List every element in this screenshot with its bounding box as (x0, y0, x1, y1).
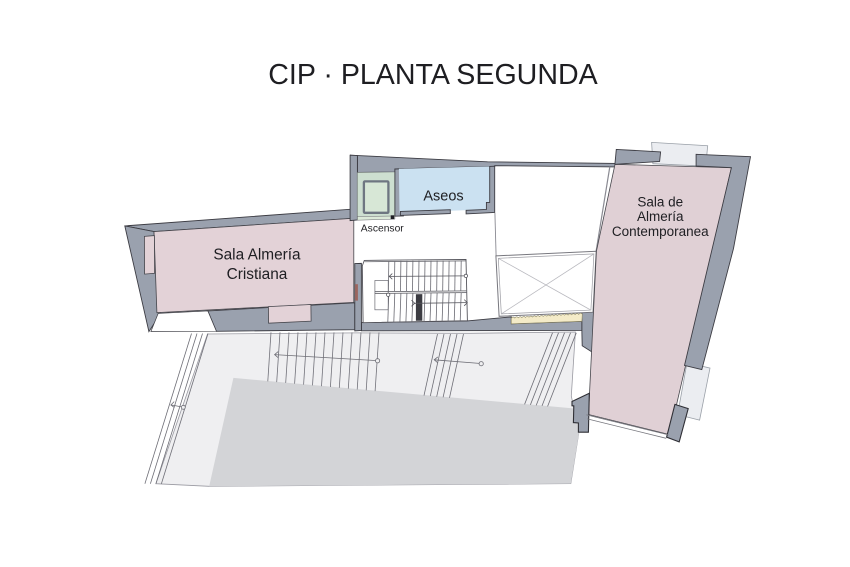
svg-text:CIP · PLANTA SEGUNDA: CIP · PLANTA SEGUNDA (268, 59, 598, 91)
svg-text:Aseos: Aseos (423, 188, 463, 204)
svg-text:Cristiana: Cristiana (227, 266, 288, 283)
svg-text:Ascensor: Ascensor (361, 224, 404, 235)
svg-text:Sala Almería: Sala Almería (213, 247, 301, 264)
svg-text:Almería: Almería (637, 209, 684, 224)
svg-text:Contemporanea: Contemporanea (612, 224, 709, 239)
svg-text:Sala de: Sala de (637, 194, 683, 209)
